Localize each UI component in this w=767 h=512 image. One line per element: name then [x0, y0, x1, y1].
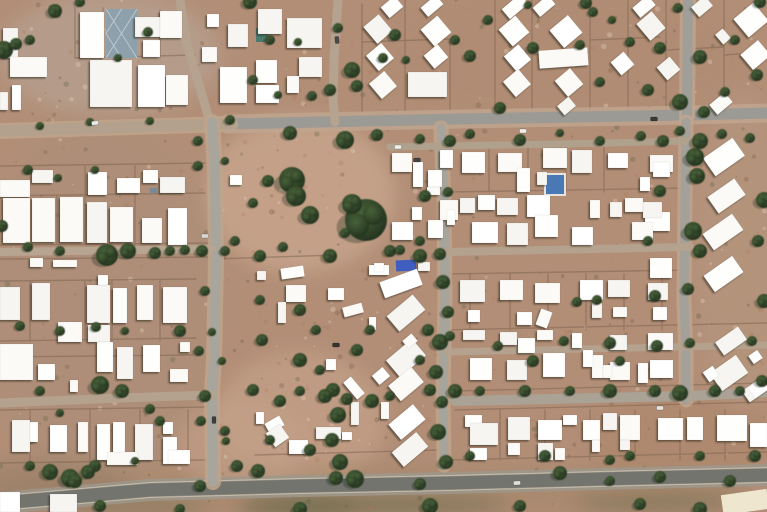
tree-canopy	[252, 76, 257, 81]
tree-canopy	[419, 251, 426, 258]
tree-canopy	[94, 461, 100, 467]
tree-canopy	[729, 476, 735, 482]
building	[113, 288, 127, 323]
tree-canopy	[332, 385, 339, 392]
tree-canopy	[435, 367, 442, 374]
building	[583, 350, 593, 367]
tree-canopy	[756, 70, 762, 76]
building	[180, 342, 190, 352]
building	[163, 422, 173, 434]
building	[478, 195, 495, 210]
tree-canopy	[39, 123, 43, 127]
tree-canopy	[754, 451, 760, 457]
tree-canopy	[169, 247, 174, 252]
tree-canopy	[596, 296, 601, 301]
building	[60, 197, 83, 242]
tree-canopy	[654, 291, 660, 297]
tree-canopy	[95, 323, 100, 328]
tree-canopy	[211, 329, 215, 333]
tree-canopy	[419, 479, 425, 485]
tree-canopy	[259, 251, 265, 257]
building	[460, 280, 485, 302]
tree-canopy	[236, 461, 242, 467]
tree-canopy	[59, 327, 64, 332]
tree-canopy	[524, 386, 530, 392]
building	[418, 262, 430, 271]
tree-canopy	[154, 248, 160, 254]
tree-canopy	[204, 287, 209, 292]
tree-canopy	[437, 426, 445, 434]
vehicle	[651, 117, 658, 121]
building	[610, 202, 622, 217]
tree-canopy	[200, 417, 205, 422]
tree-canopy	[532, 43, 538, 49]
building	[518, 338, 535, 353]
tree-canopy	[734, 36, 739, 41]
building	[98, 275, 108, 285]
vehicle	[91, 121, 98, 126]
tree-canopy	[224, 427, 229, 432]
building	[507, 360, 527, 380]
building	[256, 60, 277, 83]
tree-canopy	[419, 356, 424, 361]
tree-canopy	[382, 54, 387, 59]
tree-canopy	[405, 57, 409, 61]
tree-canopy	[319, 366, 324, 371]
building	[97, 342, 113, 372]
tree-canopy	[277, 92, 281, 96]
building	[592, 355, 603, 378]
tree-canopy	[117, 55, 121, 59]
building	[460, 198, 475, 213]
tree-canopy	[454, 386, 461, 393]
tree-canopy	[337, 24, 342, 29]
tree-canopy	[527, 2, 531, 6]
building	[620, 415, 640, 440]
building	[87, 285, 110, 323]
tree-canopy	[699, 135, 707, 143]
tree-canopy	[179, 505, 184, 510]
building	[535, 215, 558, 237]
tree-canopy	[469, 51, 475, 57]
tree-canopy	[439, 249, 445, 255]
tree-canopy	[124, 328, 128, 332]
building	[257, 271, 266, 280]
building	[603, 365, 612, 378]
building	[110, 207, 133, 242]
building	[342, 432, 352, 440]
tree-canopy	[569, 387, 574, 392]
building	[650, 258, 672, 278]
building	[0, 287, 20, 320]
building	[603, 413, 617, 430]
building	[517, 168, 530, 192]
tree-canopy	[659, 186, 665, 192]
building	[408, 72, 447, 97]
road-vertical-top-center	[333, 0, 338, 122]
building	[287, 76, 299, 93]
vehicle	[335, 36, 340, 43]
building	[0, 344, 33, 380]
tree-canopy	[677, 4, 682, 9]
tree-canopy	[592, 8, 597, 13]
tree-canopy	[159, 417, 164, 422]
tree-canopy	[609, 338, 615, 344]
tree-canopy	[1, 221, 7, 227]
tree-canopy	[429, 385, 435, 391]
building	[470, 423, 498, 445]
tree-canopy	[329, 85, 335, 91]
building	[286, 285, 306, 302]
tree-canopy	[599, 78, 604, 83]
building	[643, 202, 662, 218]
tree-canopy	[654, 386, 660, 392]
building	[620, 440, 630, 450]
tree-canopy	[59, 247, 64, 252]
tree-canopy	[559, 130, 563, 134]
tree-canopy	[427, 325, 433, 331]
tree-canopy	[179, 326, 185, 332]
building	[472, 222, 498, 243]
tree-canopy	[59, 410, 63, 414]
tree-canopy	[629, 38, 634, 43]
tree-canopy	[54, 6, 61, 13]
tree-canopy	[419, 237, 424, 242]
building	[70, 380, 78, 392]
building	[117, 347, 133, 379]
building	[299, 57, 322, 77]
tree-canopy	[27, 166, 32, 171]
tree-canopy	[57, 175, 61, 179]
building	[143, 345, 160, 372]
tree-canopy	[39, 387, 44, 392]
building	[50, 425, 67, 452]
tree-canopy	[371, 396, 378, 403]
tree-canopy	[611, 17, 615, 21]
tree-canopy	[399, 246, 404, 251]
tree-canopy	[257, 466, 264, 473]
tree-canopy	[299, 305, 305, 311]
building	[278, 302, 286, 323]
tree-canopy	[609, 386, 616, 393]
tree-canopy	[309, 445, 315, 451]
building	[38, 364, 55, 380]
building	[543, 353, 565, 377]
road-vertical-right-top	[687, 0, 688, 115]
tree-canopy	[199, 481, 205, 487]
tree-canopy	[429, 500, 437, 508]
building	[12, 420, 30, 452]
building	[497, 198, 518, 215]
building	[80, 12, 104, 58]
tree-canopy	[99, 378, 108, 387]
building	[638, 363, 648, 383]
tree-canopy	[94, 167, 98, 171]
building	[463, 330, 485, 340]
building	[440, 150, 453, 168]
tree-canopy	[694, 150, 703, 159]
tree-canopy	[346, 394, 352, 400]
tree-canopy	[339, 456, 347, 464]
tree-canopy	[699, 52, 706, 59]
building	[256, 412, 264, 424]
tree-canopy	[354, 472, 363, 481]
tree-canopy	[309, 208, 318, 217]
building	[470, 358, 492, 380]
tree-canopy	[315, 326, 320, 331]
tree-canopy	[687, 284, 693, 290]
building	[500, 332, 517, 345]
building	[468, 310, 480, 322]
vehicle	[202, 234, 209, 238]
building	[207, 14, 219, 27]
building	[447, 210, 455, 225]
tree-canopy	[757, 236, 763, 242]
tree-canopy	[356, 345, 362, 351]
tree-canopy	[749, 134, 754, 139]
ground-patch	[575, 495, 745, 511]
tree-canopy	[609, 477, 614, 482]
tree-canopy	[469, 452, 474, 457]
tree-canopy	[424, 191, 430, 197]
tree-canopy	[295, 188, 305, 198]
building	[500, 280, 523, 300]
building	[168, 450, 190, 464]
building	[412, 207, 422, 220]
tree-canopy	[679, 127, 684, 132]
tree-canopy	[369, 326, 374, 331]
tree-canopy	[225, 438, 229, 442]
building	[202, 47, 217, 62]
tree-canopy	[487, 16, 492, 21]
tree-canopy	[99, 501, 105, 507]
tree-canopy	[640, 132, 645, 137]
tree-canopy	[445, 457, 452, 464]
tree-canopy	[499, 103, 505, 109]
tree-canopy	[351, 64, 359, 72]
tree-canopy	[121, 386, 128, 393]
tree-canopy	[647, 237, 652, 242]
tree-canopy	[659, 43, 665, 49]
tree-canopy	[441, 397, 447, 403]
building	[32, 283, 50, 320]
tree-canopy	[714, 386, 720, 392]
tree-canopy	[619, 357, 624, 362]
vehicle	[513, 481, 520, 485]
tree-canopy	[721, 130, 726, 135]
building	[625, 198, 643, 212]
tree-canopy	[147, 28, 152, 33]
building	[543, 148, 567, 168]
building	[228, 24, 248, 47]
building	[328, 288, 344, 300]
tree-canopy	[576, 298, 581, 303]
tree-canopy	[337, 409, 345, 417]
vehicle	[414, 158, 421, 162]
tree-canopy	[579, 41, 584, 46]
building	[653, 307, 667, 320]
tree-canopy	[127, 245, 135, 253]
building	[88, 172, 107, 195]
building	[374, 263, 384, 272]
tree-canopy	[27, 243, 32, 248]
tree-canopy	[479, 387, 484, 392]
tree-canopy	[563, 337, 568, 342]
building	[78, 422, 88, 452]
tree-canopy	[699, 452, 704, 457]
tree-canopy	[224, 247, 229, 252]
tree-canopy	[454, 36, 459, 41]
building	[538, 420, 562, 440]
tree-canopy	[221, 358, 225, 362]
building	[555, 448, 565, 460]
vehicle	[395, 145, 402, 149]
tree-canopy	[599, 137, 604, 142]
tree-canopy	[724, 88, 729, 93]
vehicle	[333, 343, 340, 347]
building	[230, 175, 242, 185]
tree-canopy	[197, 162, 202, 167]
building	[413, 162, 423, 187]
building	[535, 283, 560, 303]
building	[163, 287, 187, 323]
building	[508, 443, 520, 455]
tree-canopy	[449, 136, 455, 142]
tree-canopy	[49, 466, 57, 474]
tree-canopy	[351, 196, 361, 206]
tree-canopy	[299, 504, 306, 511]
tree-canopy	[259, 296, 264, 301]
vehicle	[520, 129, 527, 133]
tree-canopy	[739, 387, 744, 392]
tree-canopy	[299, 387, 304, 392]
tree-canopy	[609, 456, 614, 461]
tree-canopy	[335, 473, 342, 480]
tree-canopy	[703, 107, 709, 113]
tree-canopy	[282, 243, 287, 248]
tree-canopy	[331, 435, 338, 442]
building	[572, 227, 593, 245]
tree-canopy	[252, 385, 258, 391]
building	[0, 492, 20, 512]
building	[10, 57, 47, 77]
building	[50, 494, 77, 512]
building	[90, 60, 132, 107]
building	[537, 330, 553, 340]
building	[143, 170, 158, 183]
tree-canopy	[469, 130, 474, 135]
tree-canopy	[261, 335, 267, 341]
tree-canopy	[447, 307, 453, 313]
tree-canopy	[311, 92, 316, 97]
building	[717, 415, 747, 441]
building	[592, 440, 600, 452]
tree-canopy	[751, 337, 756, 342]
tree-canopy	[761, 376, 767, 382]
building	[30, 422, 38, 442]
tree-canopy	[297, 39, 301, 43]
building	[0, 180, 30, 197]
tree-canopy	[197, 137, 202, 142]
building	[527, 195, 550, 217]
tree-canopy	[662, 136, 668, 142]
building	[143, 40, 160, 57]
tree-canopy	[699, 246, 706, 253]
tree-canopy	[299, 355, 306, 362]
building	[30, 258, 43, 267]
building	[287, 18, 322, 48]
tree-canopy	[376, 130, 382, 136]
tree-canopy	[497, 342, 502, 347]
building	[392, 153, 412, 172]
building	[3, 198, 30, 243]
tree-canopy	[198, 347, 203, 352]
building	[538, 47, 588, 68]
tree-canopy	[224, 158, 228, 162]
building	[87, 202, 107, 243]
tree-canopy	[363, 204, 384, 225]
tree-canopy	[639, 499, 645, 505]
tree-canopy	[15, 39, 21, 45]
building	[138, 65, 165, 107]
tree-canopy	[19, 322, 24, 327]
building	[32, 198, 55, 242]
building	[32, 170, 53, 183]
tree-canopy	[289, 128, 296, 135]
tree-canopy	[419, 135, 424, 140]
tree-canopy	[229, 116, 234, 121]
building	[166, 75, 188, 105]
building	[117, 178, 140, 193]
tree-canopy	[252, 199, 257, 204]
tree-canopy	[149, 405, 154, 410]
building	[326, 359, 336, 370]
tree-canopy	[201, 246, 207, 252]
building	[137, 285, 153, 320]
tree-canopy	[532, 356, 538, 362]
building	[53, 260, 77, 267]
building	[170, 369, 188, 382]
tree-canopy	[699, 504, 706, 511]
tree-canopy	[647, 85, 653, 91]
tree-canopy	[204, 391, 210, 397]
tree-canopy	[679, 96, 687, 104]
tree-canopy	[234, 237, 239, 242]
building	[220, 67, 247, 103]
building	[258, 9, 282, 34]
tree-canopy	[689, 339, 694, 344]
building	[12, 85, 21, 110]
tree-canopy	[679, 387, 687, 395]
tree-canopy	[29, 36, 34, 41]
building	[537, 172, 547, 185]
tree-canopy	[344, 229, 349, 234]
tree-canopy	[519, 135, 525, 141]
satellite-scene	[0, 0, 767, 512]
lane-right-1	[447, 247, 690, 252]
building	[381, 402, 389, 419]
tree-canopy	[449, 332, 454, 337]
building	[351, 402, 359, 425]
tree-canopy	[290, 170, 303, 183]
building	[0, 92, 8, 110]
tree-canopy	[519, 501, 525, 507]
tree-canopy	[629, 452, 634, 457]
tree-canopy	[279, 396, 285, 402]
building	[572, 150, 592, 173]
tree-canopy	[544, 451, 550, 457]
swimming-pool	[546, 175, 564, 194]
